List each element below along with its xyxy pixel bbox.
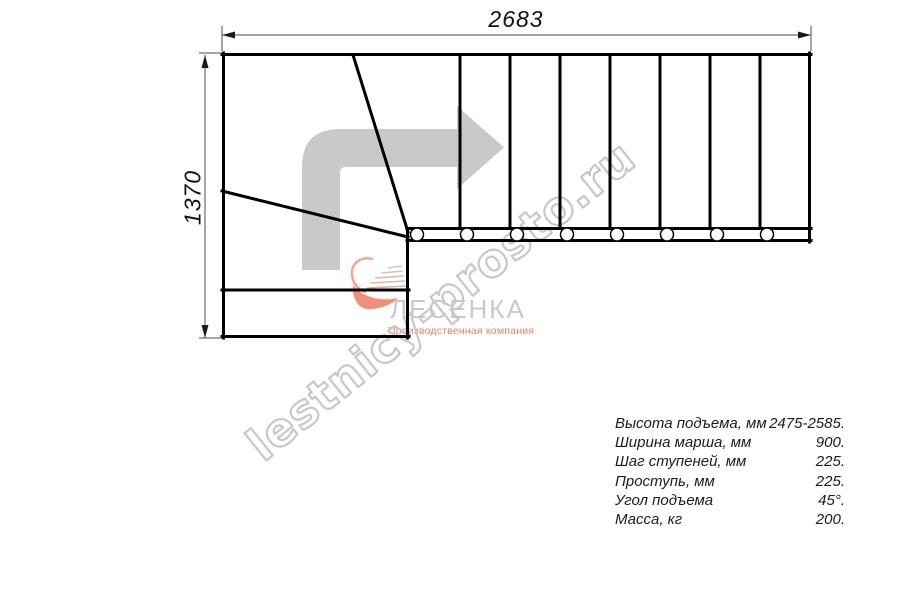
- spec-row-flight-width: Ширина марша, мм 900.: [615, 433, 845, 452]
- spec-label: Ширина марша, мм: [615, 433, 751, 452]
- spec-row-step-pitch: Шаг ступеней, мм 225.: [615, 452, 845, 471]
- watermark-text: lestnicy-prosto.ru: [236, 130, 645, 472]
- spec-value: 2475-2585.: [769, 414, 845, 433]
- dimension-height-label: 1370: [180, 158, 207, 238]
- spec-value: 900.: [816, 433, 845, 452]
- spec-row-angle: Угол подъема 45°.: [615, 491, 845, 510]
- spec-row-tread: Проступь, мм 225.: [615, 472, 845, 491]
- spec-label: Высота подъема, мм: [615, 414, 767, 433]
- spec-value: 225.: [816, 452, 845, 471]
- spec-value: 45°.: [818, 491, 845, 510]
- dimension-width-label: 2683: [416, 6, 616, 33]
- spec-value: 225.: [816, 472, 845, 491]
- specs-table: Высота подъема, мм 2475-2585. Ширина мар…: [615, 414, 845, 529]
- spec-label: Проступь, мм: [615, 472, 715, 491]
- spec-row-height: Высота подъема, мм 2475-2585.: [615, 414, 845, 433]
- spec-label: Масса, кг: [615, 510, 682, 529]
- spec-value: 200.: [816, 510, 845, 529]
- spec-label: Шаг ступеней, мм: [615, 452, 746, 471]
- spec-row-mass: Масса, кг 200.: [615, 510, 845, 529]
- spec-label: Угол подъема: [615, 491, 713, 510]
- stair-drawing-page: ЛЕСЕНКА Производственная компания lestni…: [0, 0, 900, 600]
